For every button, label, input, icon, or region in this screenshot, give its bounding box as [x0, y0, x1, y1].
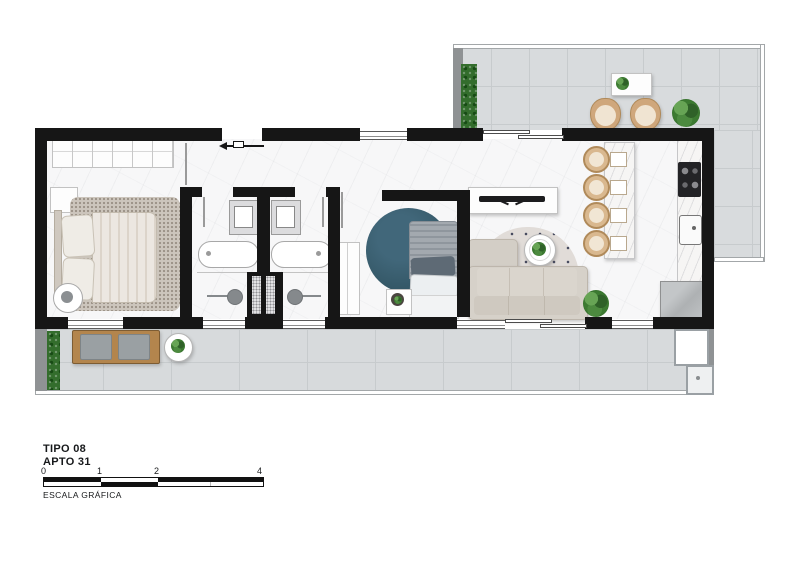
kitchen-faucet [692, 226, 696, 230]
wardrobe [52, 137, 174, 168]
wall-bedroom1 [180, 187, 192, 317]
window-bathroom2 [283, 320, 325, 329]
entry-arrow-line [226, 145, 264, 147]
window-kitchen [612, 320, 653, 329]
service-counter [660, 281, 704, 319]
floor-plan-canvas: TIPO 08 APTO 31 0 1 2 4 ESCALA GRÁFICA [0, 0, 800, 566]
sliding-door-balcony [483, 130, 530, 134]
wall-bottom [585, 317, 612, 329]
apartment-label: APTO 31 [43, 456, 91, 468]
shower-arm [207, 295, 229, 297]
wall-bathroom2 [328, 187, 340, 317]
island-plate [610, 236, 627, 251]
wall-bottom [653, 317, 714, 329]
tv [479, 196, 545, 202]
bar-stool [583, 202, 610, 229]
unit-type-label: TIPO 08 [43, 443, 86, 455]
bathroom2-sink [276, 206, 295, 228]
wall-bottom [325, 317, 457, 329]
balcony-armchair [630, 98, 661, 131]
wall-bottom [123, 317, 203, 329]
shower-core-glass [252, 276, 261, 314]
bar-stool [583, 230, 610, 257]
bathtub [271, 241, 332, 268]
scale-bar-minor-tick [210, 482, 211, 486]
cooktop [678, 162, 701, 197]
entry-door-symbol [233, 141, 244, 148]
bathtub-drain [316, 251, 321, 256]
side-table-plant [171, 339, 185, 353]
scale-caption: ESCALA GRÁFICA [43, 490, 122, 500]
balcony-armchair [590, 98, 621, 131]
bathtub-drain [206, 251, 211, 256]
pouf-center [61, 291, 73, 303]
terrace-hedge [47, 331, 60, 390]
sofa-seats [477, 268, 577, 296]
nightstand-plant [394, 296, 402, 304]
wall-bedroom2-living [457, 190, 470, 317]
balcony-railing-right [760, 44, 765, 262]
window-bedroom1 [68, 320, 123, 329]
sliding-door-balcony [518, 135, 564, 139]
balcony-railing-top [453, 44, 765, 49]
shower-core-glass [266, 276, 275, 314]
washing-machine [674, 329, 709, 366]
wall-top [562, 128, 714, 141]
balcony-railing-bottom [714, 257, 764, 262]
balcony-floor-side [714, 130, 765, 260]
bar-stool [583, 146, 610, 173]
coffee-table-plant [532, 242, 546, 256]
balcony-bush [672, 99, 700, 127]
terrace-left-wall-strip [35, 329, 47, 391]
window-hallway [360, 131, 407, 140]
wall-top [262, 128, 360, 141]
sliding-door-terrace [540, 324, 587, 328]
window-living [457, 320, 505, 329]
wall-bottom [245, 317, 283, 329]
double-bed-duvet [92, 212, 157, 303]
scale-tick-1: 1 [97, 466, 102, 476]
sliding-door-terrace [505, 319, 552, 323]
scale-bar [43, 477, 264, 487]
laundry-sink-drain [696, 376, 700, 380]
wall-bottom [35, 317, 68, 329]
bed-sheet [409, 295, 459, 319]
bathroom1-sink [234, 206, 253, 228]
terrace-edge-railing [35, 390, 714, 395]
kitchen-sink [679, 215, 702, 245]
laundry-sink [686, 365, 714, 395]
island-plate [610, 208, 627, 223]
bedroom2-closet [337, 242, 360, 315]
door-leaf-bedroom2 [341, 192, 343, 228]
bar-stool [583, 174, 610, 201]
scale-bar-segment [44, 478, 101, 482]
island-plate [610, 152, 627, 167]
window-bathroom1 [203, 320, 245, 329]
door-leaf-bathroom1 [203, 197, 205, 227]
bench-cushion [80, 334, 112, 360]
sofa-side-plant [583, 290, 609, 317]
wall-left [35, 128, 47, 329]
scale-tick-2: 2 [154, 466, 159, 476]
shower-head [287, 289, 303, 305]
scale-bar-segment [101, 482, 158, 486]
bench-cushion [118, 334, 150, 360]
entry-arrow-head [219, 142, 227, 150]
island-plate [610, 180, 627, 195]
wall-hall-bath [192, 187, 202, 197]
bed-pillow [61, 214, 96, 258]
door-leaf-bathroom2 [322, 197, 324, 227]
balcony-table-plant [616, 77, 629, 90]
wall-top [35, 128, 222, 141]
scale-tick-4: 4 [257, 466, 262, 476]
sofa-back-cushions [474, 296, 580, 315]
scale-tick-0: 0 [41, 466, 46, 476]
door-leaf-bedroom1 [185, 143, 187, 185]
balcony-hedge [461, 64, 477, 134]
wall-top [407, 128, 483, 141]
shower-head [227, 289, 243, 305]
wall-right [702, 128, 714, 329]
